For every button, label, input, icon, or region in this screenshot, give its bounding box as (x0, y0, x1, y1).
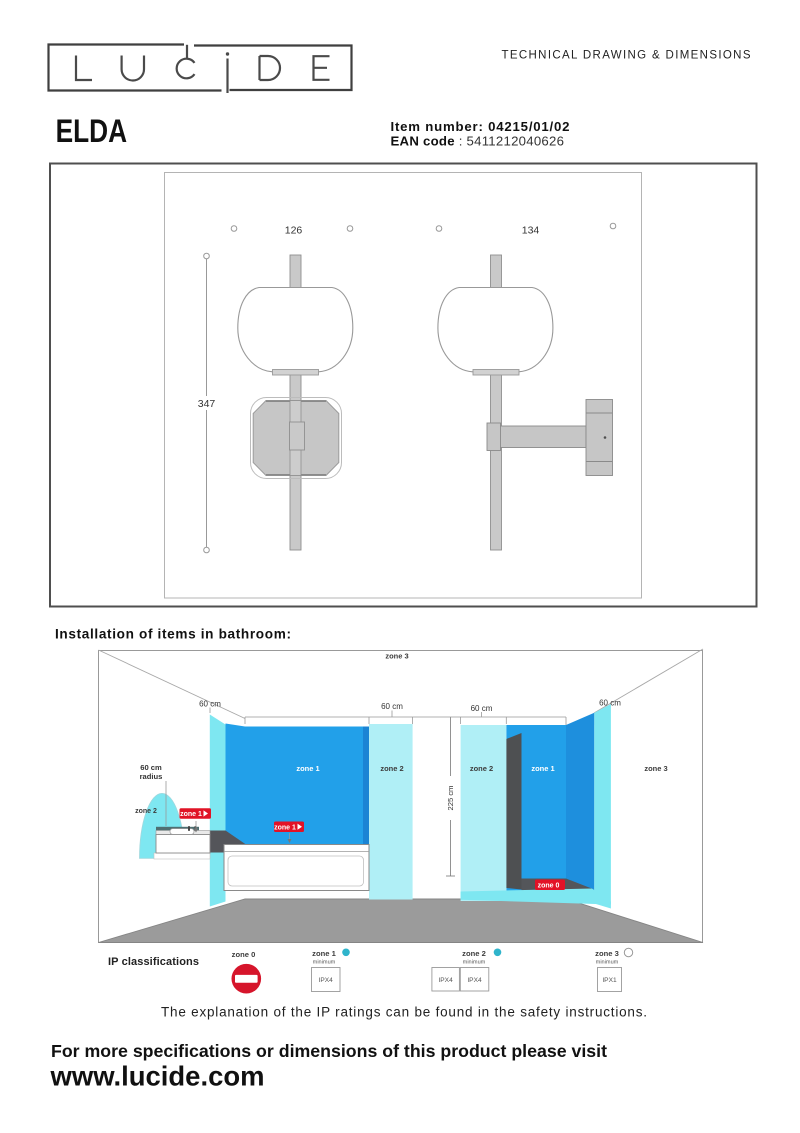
svg-text:zone 2: zone 2 (380, 764, 403, 773)
svg-text:ELDA: ELDA (56, 113, 128, 149)
svg-text:minimum: minimum (463, 960, 486, 966)
svg-text:zone 0: zone 0 (232, 950, 256, 959)
svg-text:zone 3: zone 3 (644, 764, 667, 773)
svg-text:zone 1: zone 1 (296, 764, 319, 773)
svg-text:minimum: minimum (313, 960, 336, 966)
svg-text:TECHNICAL DRAWING & DIMENSIONS: TECHNICAL DRAWING & DIMENSIONS (502, 50, 751, 62)
svg-text:347: 347 (198, 398, 216, 410)
svg-text:zone 1: zone 1 (312, 949, 336, 958)
svg-text:zone 1: zone 1 (531, 764, 554, 773)
svg-text:60 cm: 60 cm (381, 702, 403, 711)
svg-text:60 cm: 60 cm (140, 763, 162, 772)
svg-text:134: 134 (522, 225, 540, 237)
svg-text:zone 2: zone 2 (462, 949, 486, 958)
svg-text:EAN code : 5411212040626: EAN code : 5411212040626 (391, 134, 565, 149)
svg-text:IPX4: IPX4 (438, 977, 453, 984)
svg-text:IP classifications: IP classifications (108, 956, 199, 968)
svg-text:minimum: minimum (596, 960, 619, 966)
svg-text:The explanation of the IP rati: The explanation of the IP ratings can be… (161, 1005, 647, 1020)
svg-text:zone 3: zone 3 (595, 949, 619, 958)
svg-text:60 cm: 60 cm (471, 704, 493, 713)
svg-text:60 cm: 60 cm (199, 700, 221, 709)
svg-text:Installation of items in bathr: Installation of items in bathroom: (55, 627, 291, 642)
svg-text:For more specifications or dim: For more specifications or dimensions of… (51, 1041, 607, 1061)
svg-text:zone 1: zone 1 (180, 811, 202, 818)
svg-text:126: 126 (285, 225, 303, 237)
svg-text:IPX4: IPX4 (319, 977, 334, 984)
svg-text:IPX4: IPX4 (467, 977, 482, 984)
svg-text:Item number: 04215/01/02: Item number: 04215/01/02 (391, 119, 570, 134)
svg-text:IPX1: IPX1 (602, 977, 617, 984)
svg-text:www.lucide.com: www.lucide.com (50, 1061, 265, 1092)
svg-text:zone 2: zone 2 (470, 764, 493, 773)
svg-text:zone 1: zone 1 (274, 824, 296, 831)
svg-text:60 cm: 60 cm (599, 699, 621, 708)
svg-text:zone 0: zone 0 (538, 883, 560, 890)
svg-text:zone 2: zone 2 (135, 808, 157, 815)
svg-text:225 cm: 225 cm (446, 786, 455, 811)
svg-text:radius: radius (140, 772, 163, 781)
svg-text:zone 3: zone 3 (385, 652, 408, 661)
